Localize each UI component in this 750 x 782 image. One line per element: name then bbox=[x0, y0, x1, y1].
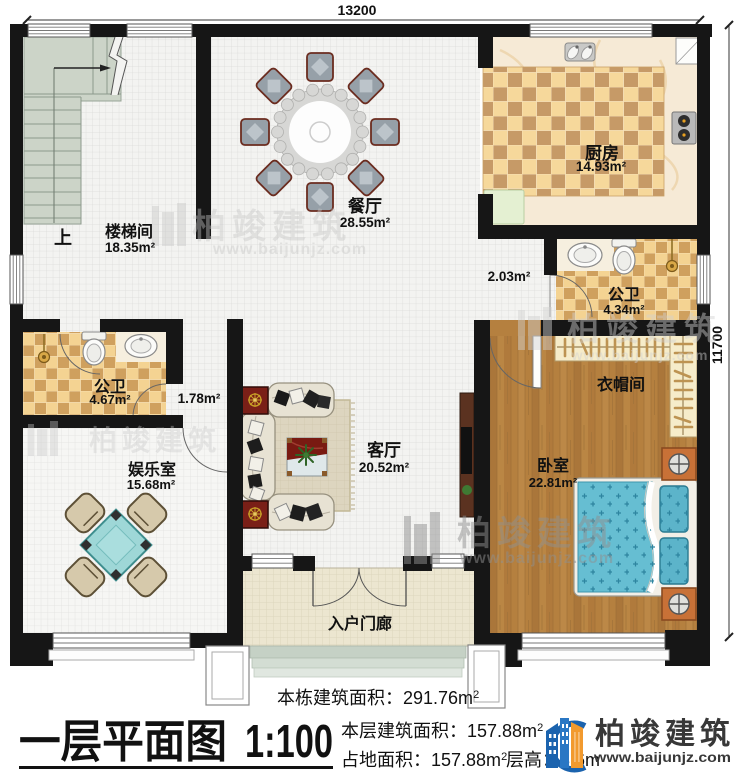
svg-text:一层平面图: 一层平面图 bbox=[19, 716, 227, 767]
svg-text:www.baijunjz.com: www.baijunjz.com bbox=[212, 241, 367, 258]
svg-text:4.67m²: 4.67m² bbox=[89, 392, 131, 407]
svg-text:卧室: 卧室 bbox=[537, 456, 569, 475]
svg-text:14.93m²: 14.93m² bbox=[576, 159, 627, 174]
svg-text:本层建筑面积：157.88m2: 本层建筑面积：157.88m2 bbox=[341, 721, 543, 741]
svg-text:上: 上 bbox=[54, 228, 72, 248]
svg-text:1:100: 1:100 bbox=[245, 715, 333, 767]
svg-text:本栋建筑面积：291.76m2: 本栋建筑面积：291.76m2 bbox=[277, 688, 479, 708]
svg-text:入户门廊: 入户门廊 bbox=[328, 614, 392, 633]
svg-text:www.baijunjz.com: www.baijunjz.com bbox=[593, 749, 731, 765]
svg-text:柏竣建筑: 柏竣建筑 bbox=[457, 514, 617, 553]
svg-text:4.34m²: 4.34m² bbox=[603, 302, 645, 317]
svg-text:15.68m²: 15.68m² bbox=[127, 477, 176, 492]
svg-text:20.52m²: 20.52m² bbox=[359, 460, 410, 475]
svg-text:柏竣建筑: 柏竣建筑 bbox=[89, 424, 221, 456]
svg-text:柏竣建筑: 柏竣建筑 bbox=[595, 717, 735, 751]
svg-text:客厅: 客厅 bbox=[366, 440, 401, 460]
svg-text:柏竣建筑: 柏竣建筑 bbox=[567, 311, 723, 347]
svg-text:28.55m²: 28.55m² bbox=[340, 215, 391, 230]
svg-text:餐厅: 餐厅 bbox=[348, 196, 382, 216]
svg-text:楼梯间: 楼梯间 bbox=[105, 222, 153, 241]
svg-text:占地面积：157.88m2: 占地面积：157.88m2 bbox=[341, 750, 507, 770]
svg-text:22.81m²: 22.81m² bbox=[529, 475, 578, 490]
svg-text:www.baijunjz.com: www.baijunjz.com bbox=[459, 550, 614, 567]
svg-text:1.78m²: 1.78m² bbox=[178, 391, 221, 406]
svg-text:www.baijunjz.com: www.baijunjz.com bbox=[571, 347, 709, 363]
svg-text:衣帽间: 衣帽间 bbox=[597, 375, 645, 394]
svg-text:13200: 13200 bbox=[338, 2, 377, 18]
svg-text:18.35m²: 18.35m² bbox=[105, 240, 156, 255]
svg-text:2.03m²: 2.03m² bbox=[488, 269, 531, 284]
